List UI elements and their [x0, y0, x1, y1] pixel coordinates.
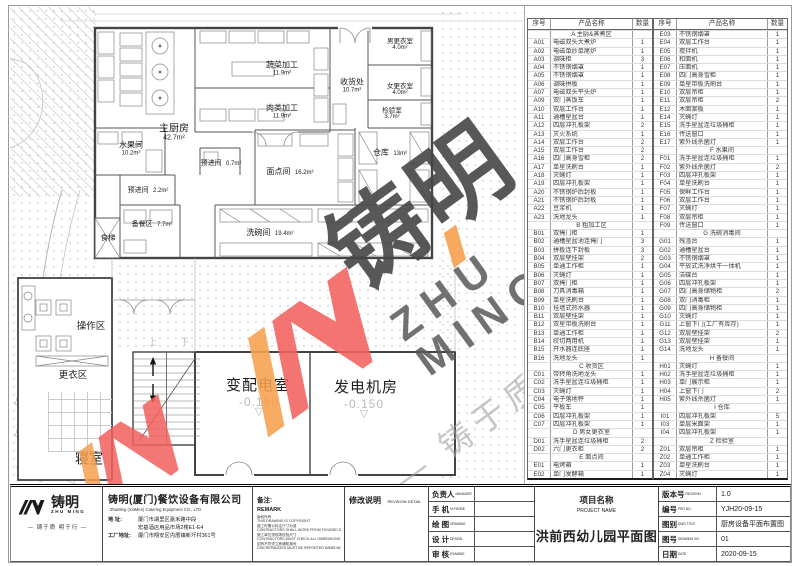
table-row: A19 四层冲孔板架 1 [528, 179, 652, 187]
room-label: 变配电室 [226, 378, 290, 395]
info-value: 01 [717, 536, 790, 543]
table-row: B08 刀具消毒箱 1 [528, 287, 652, 295]
address-label: 地 址: [108, 516, 138, 532]
table-row: F04 单星洗刷台 1 [654, 179, 787, 187]
role-label: 审 核 [432, 549, 449, 560]
table-row: A11 通槽星盆台 1 [528, 113, 652, 121]
table-row: F07 灭蝇灯 1 [654, 204, 787, 212]
info-label-en: DWG.TITLE [678, 522, 695, 526]
table-row: B16 洗地龙头 1 [528, 354, 652, 362]
info-label-en: REVISION [686, 492, 701, 496]
table-row: A22 豆浆机 1 [528, 204, 652, 212]
revision-detail-label: 修改说明 [349, 496, 381, 505]
table-row: G01 残渣台 1 [654, 237, 787, 245]
drawing-sheet: 蔬菜加工 11.9m² 肉类加工 11.9m² 收货处 10.7m² 男更衣室 … [0, 0, 800, 566]
stair-up-label: 上 [148, 335, 157, 348]
table-row: G07 四门高身储物柜 2 [654, 287, 787, 295]
remark-label-en: REMARK [257, 507, 341, 513]
table-row: E08 四门高身雪柜 1 [654, 71, 787, 79]
table-row: C05 平板车 1 [528, 403, 652, 411]
floor-plan: 蔬菜加工 11.9m² 肉类加工 11.9m² 收货处 10.7m² 男更衣室 … [0, 0, 524, 484]
table-row: Z03 单星洗刷台 1 [654, 461, 787, 469]
table-row: Z 检验室 [654, 437, 787, 445]
table-row: A01 电磁双头大煮炉 1 [528, 38, 652, 46]
info-value: 1.0 [717, 491, 790, 498]
equipment-table-right: 序号 产品名称 数量 E03 不锈钢烟罩 1 E04 双层工作台 1 E05 搅… [653, 18, 788, 480]
role-label: 绘 图 [432, 519, 449, 530]
table-row: E05 搅拌机 1 [654, 47, 787, 55]
logo-brand: 铸明 [51, 495, 85, 509]
table-row: G09 四门高身储物柜 1 [654, 304, 787, 312]
role-label-en: DRAWING [450, 522, 465, 526]
table-row: G12 双层壁挂架 2 [654, 329, 787, 337]
table-row: A04 不锈钢烟罩 1 [528, 63, 652, 71]
table-row: E 面点间 [528, 453, 652, 461]
col-qty: 数量 [633, 19, 652, 29]
table-row: D02 六门更衣柜 2 [528, 445, 652, 453]
room-label: 收货处 10.7m² [340, 78, 364, 93]
table-row: I01 四层冲孔板架 5 [654, 412, 787, 420]
col-code: 序号 [654, 19, 677, 29]
project-name: 洪前西幼儿园平面图 [535, 526, 658, 545]
table-row: G13 双层壁挂架 1 [654, 337, 787, 345]
table-row: C 收货区 [528, 362, 652, 370]
room-label: 预进间 2.2m² [128, 179, 169, 197]
role-row: 负责人 MANAGER [429, 487, 534, 502]
table-row: B05 单通工作柜 1 [528, 262, 652, 270]
table-row: E09 单星带板洗刷台 1 [654, 80, 787, 88]
table-row: E06 和面机 1 [654, 55, 787, 63]
company-info: 铸明(厦门)餐饮设备有限公司 ZhuMing (XiaMen) Catering… [103, 487, 253, 561]
table-row: A16 四门高身雪柜 2 [528, 154, 652, 162]
table-row: B01 双掩门柜 1 [528, 229, 652, 237]
role-label-en: MANAGER [456, 492, 472, 496]
col-name: 产品名称 [677, 19, 768, 29]
remark-lines: 版权所有THIS DRAWING IS COPYRIGHT施工时需以标注尺寸为准… [257, 515, 341, 551]
info-row: 日期 DATE 2020-09-15 [659, 547, 790, 561]
stair-down-label: 下 [180, 335, 189, 348]
table-row: D01 洗手星盆连垃圾桶柜 2 [528, 437, 652, 445]
company-logo: 铸明 ZHU MING — 铸于质 明于行 — [11, 487, 103, 561]
table-row: F 水果间 [654, 146, 787, 154]
project-label-en: PROJECT NAME [535, 508, 658, 514]
table-row: A03 调味柜 3 [528, 55, 652, 63]
table-row: A18 灭蝇灯 1 [528, 171, 652, 179]
level-marker: -0.150 ▽ [344, 398, 384, 420]
table-header: 序号 产品名称 数量 [528, 19, 652, 30]
table-row: A02 电磁单炒单尾炉 1 [528, 47, 652, 55]
role-label: 设 计 [432, 534, 449, 545]
table-row: B 粗加工区 [528, 221, 652, 229]
table-row: B14 绞切两用机 1 [528, 337, 652, 345]
info-label: 编号 [662, 504, 677, 515]
logo-tagline: — 铸于质 明于行 — [17, 523, 98, 531]
role-label-en: M.PHONE [450, 507, 465, 511]
room-label: 肉类加工 11.9m² [266, 104, 298, 119]
table-row: I04 四层冲孔板架 1 [654, 428, 787, 436]
room-label: 蔬菜加工 11.9m² [266, 61, 298, 76]
table-row: I 仓库 [654, 403, 787, 411]
factory-label: 工厂地址: [108, 532, 138, 540]
table-row: A23 洗地龙头 1 [528, 213, 652, 221]
room-label: 备餐区 7.7m² [132, 213, 173, 231]
table-row: F08 双层吊柜 1 [654, 213, 787, 221]
table-row: G10 灭蝇灯 1 [654, 312, 787, 320]
revision-detail-cell: 修改说明 REVISION DETAIL [345, 487, 429, 561]
table-row: E17 紫外线杀菌灯 1 [654, 138, 787, 146]
table-row: H 备餐间 [654, 354, 787, 362]
table-row: A05 不锈钢烟罩 1 [528, 71, 652, 79]
table-row: B07 双掩门柜 1 [528, 279, 652, 287]
table-row: A07 电磁双头平头炉 1 [528, 88, 652, 96]
room-label: 发电机房 [334, 380, 398, 397]
col-name: 产品名称 [551, 19, 633, 29]
table-row: A20 不锈钢炉后封板 1 [528, 188, 652, 196]
table-row: G08 双门消毒柜 1 [654, 296, 787, 304]
table-row: E01 电烤箱 1 [528, 461, 652, 469]
info-row: 版本号 REVISION 1.0 [659, 487, 790, 502]
table-row: C02 洗手星盆连垃圾桶柜 1 [528, 378, 652, 386]
table-row: A10 双层工作台 1 [528, 105, 652, 113]
table-body: A 主厨&蒸煮区 A01 电磁双头大煮炉 1 A02 电磁单炒单尾炉 1 A03… [528, 30, 652, 478]
table-row: Z02 单通工作柜 1 [654, 453, 787, 461]
col-code: 序号 [528, 19, 551, 29]
table-row: C04 电子落地秤 1 [528, 395, 652, 403]
role-row: 手 机 M.PHONE [429, 502, 534, 517]
table-row: D 男女更衣室 [528, 428, 652, 436]
table-body: E03 不锈钢烟罩 1 E04 双层工作台 1 E05 搅拌机 1 E06 和面… [654, 30, 787, 478]
table-row: E11 双层吊柜 2 [654, 96, 787, 104]
table-row: B11 双层壁挂架 1 [528, 312, 652, 320]
room-label: 食梯 [101, 234, 116, 242]
table-row: G06 四层冲孔板架 1 [654, 279, 787, 287]
table-row: E15 洗手星盆连垃圾桶柜 1 [654, 121, 787, 129]
table-row: H04 上窗下门 2 [654, 387, 787, 395]
equipment-table-left: 序号 产品名称 数量 A 主厨&蒸煮区 A01 电磁双头大煮炉 1 A02 电磁… [527, 18, 653, 480]
table-row: B10 挂墙式热水器 1 [528, 304, 652, 312]
table-row: C01 带转角洗地龙头 1 [528, 370, 652, 378]
room-label: 寝室 [75, 451, 103, 466]
remark-line: DISCREPANCIES MUST BE REPORTED IMMEDIATE… [257, 546, 341, 550]
table-header: 序号 产品名称 数量 [654, 19, 787, 30]
table-row: G04 平放式洗净烘干一体机 1 [654, 262, 787, 270]
company-name-en: ZhuMing (XiaMen) Catering Equipment CO.,… [110, 507, 249, 512]
table-row: I03 单层米面架 1 [654, 420, 787, 428]
table-row: A15 双层工作台 2 [528, 146, 652, 154]
revision-detail-label-en: REVISION DETAIL [387, 499, 421, 504]
info-label: 图号 [662, 534, 677, 545]
table-row: B04 双层壁挂架 2 [528, 254, 652, 262]
info-label-en: DRAWING NO. [678, 537, 700, 541]
info-label-en: DATE [678, 552, 686, 556]
table-row: A14 双层工作台 2 [528, 138, 652, 146]
table-row: E02 单门发酵箱 1 [528, 470, 652, 478]
room-label: 主厨房 42.7m² [159, 124, 189, 143]
table-row: F05 保鲜工作台 1 [654, 188, 787, 196]
company-name: 铸明(厦门)餐饮设备有限公司 [108, 491, 249, 506]
table-row: F02 紫外线杀菌灯 2 [654, 163, 787, 171]
room-label: 水果间 10.2m² [119, 141, 143, 156]
table-row: B06 灭蝇灯 1 [528, 271, 652, 279]
room-label: 检验室 3.7m² [382, 107, 402, 121]
table-row: E16 传送窗口 1 [654, 130, 787, 138]
logo-brand-en: ZHU MING [51, 509, 85, 515]
table-row: F03 四层冲孔板架 1 [654, 171, 787, 179]
room-label: 预进间 0.7m² [201, 152, 242, 170]
table-row: F01 洗手星盆连垃圾桶柜 1 [654, 154, 787, 162]
role-row: 绘 图 DRAWING [429, 517, 534, 532]
table-row: A06 调味拼板 1 [528, 80, 652, 88]
plan-table-divider [524, 6, 525, 484]
info-value: 厨房设备平面布置图 [717, 519, 790, 529]
table-row: B13 单通工作柜 1 [528, 329, 652, 337]
table-row: B15 开水器连底座 1 [528, 345, 652, 353]
factory-value: 厦门市翔安区内厝镇新圩村361号 [138, 532, 216, 540]
room-label: 男更衣室 4.0m² [387, 38, 413, 52]
table-row: E14 灭蝇灯 1 [654, 113, 787, 121]
table-row: Z01 双层吊柜 1 [654, 445, 787, 453]
room-label: 洗碗间 19.4m² [246, 222, 293, 240]
room-label: 操作区 [77, 322, 106, 332]
table-row: B03 拼板连下封板 3 [528, 246, 652, 254]
table-row: H01 灭蝇灯 1 [654, 362, 787, 370]
table-row: G 洗碗消毒间 [654, 229, 787, 237]
project-cell: 项目名称 PROJECT NAME 洪前西幼儿园平面图 [535, 487, 659, 561]
table-row: G14 洗地龙头 1 [654, 345, 787, 353]
table-row: A21 不锈钢炉后封板 1 [528, 196, 652, 204]
table-row: E10 双层吊柜 1 [654, 88, 787, 96]
info-row: 编号 PRO NO. YJH20-09-15 [659, 502, 790, 517]
table-row: A17 单星洗刷台 1 [528, 163, 652, 171]
table-row: B12 双星带板洗刷台 1 [528, 320, 652, 328]
table-row: G03 不锈钢烟罩 1 [654, 254, 787, 262]
table-row: C03 灭蝇灯 1 [528, 387, 652, 395]
title-block: 铸明 ZHU MING — 铸于质 明于行 — 铸明(厦门)餐饮设备有限公司 Z… [10, 484, 791, 562]
info-value: YJH20-09-15 [717, 506, 790, 513]
table-row: H02 洗手星盆连垃圾桶柜 1 [654, 370, 787, 378]
table-row: A 主厨&蒸煮区 [528, 30, 652, 38]
level-marker: -0.150 ▽ [239, 396, 279, 418]
table-row: C06 四层冲孔板架 1 [528, 412, 652, 420]
table-row: G05 洁碟台 1 [654, 271, 787, 279]
room-label: 女更衣室 4.0m² [387, 83, 413, 97]
table-row: B02 通槽星盆池连掩门 3 [528, 237, 652, 245]
table-row: H03 单门展示柜 1 [654, 378, 787, 386]
table-row: A09 双门蒸饭车 1 [528, 96, 652, 104]
remark-cell: 备注: REMARK 版权所有THIS DRAWING IS COPYRIGHT… [253, 487, 345, 561]
table-row: E04 双层工作台 1 [654, 38, 787, 46]
table-row: F06 双层工作台 1 [654, 196, 787, 204]
bedroom-bed-grid [48, 392, 112, 452]
brand-mark-icon [17, 493, 47, 517]
info-row: 图号 DRAWING NO. 01 [659, 532, 790, 547]
table-row: A13 灭火系统 1 [528, 130, 652, 138]
role-label-en: EXAMINE [450, 552, 464, 556]
table-row: G02 通槽星盆台 1 [654, 246, 787, 254]
table-row: E12 木面案板 1 [654, 105, 787, 113]
table-row: G11 上窗下门(工厂有库存) 1 [654, 320, 787, 328]
role-label-en: DESIGN [450, 537, 462, 541]
role-label: 负责人 [432, 489, 455, 500]
table-row: Z04 灭蝇灯 1 [654, 470, 787, 478]
table-row: B09 单星洗刷台 1 [528, 296, 652, 304]
room-label: 更衣区 [59, 371, 88, 381]
roles-table: 负责人 MANAGER 手 机 M.PHONE 绘 图 DRAWING [429, 487, 535, 561]
info-row: 图别 DWG.TITLE 厨房设备平面布置图 [659, 517, 790, 532]
info-value: 2020-09-15 [717, 551, 790, 558]
role-label: 手 机 [432, 504, 449, 515]
remark-label: 备注: [257, 497, 272, 504]
project-label: 项目名称 [579, 495, 613, 505]
address-value: 厦门市湖里区嘉禾路中段 宏基酒店用品市场2楼E1-E4 [138, 516, 203, 532]
info-label: 版本号 [662, 489, 685, 500]
drawing-info-table: 版本号 REVISION 1.0 编号 PRO NO. YJH20-09-15 … [659, 487, 790, 561]
table-row: A12 四层冲孔板架 2 [528, 121, 652, 129]
info-label: 图别 [662, 519, 677, 530]
table-row: C07 四层冲孔板架 1 [528, 420, 652, 428]
table-row: H05 紫外线杀菌灯 1 [654, 395, 787, 403]
room-label: 面点间 16.2m² [266, 161, 313, 179]
table-row: F09 传送窗口 1 [654, 221, 787, 229]
room-label: 仓库 13m² [373, 142, 407, 160]
role-row: 设 计 DESIGN [429, 532, 534, 547]
info-label-en: PRO NO. [678, 507, 691, 511]
table-row: E07 压面机 1 [654, 63, 787, 71]
table-row: E03 不锈钢烟罩 1 [654, 30, 787, 38]
col-qty: 数量 [768, 19, 787, 29]
info-label: 日期 [662, 549, 677, 560]
role-row: 审 核 EXAMINE [429, 547, 534, 561]
